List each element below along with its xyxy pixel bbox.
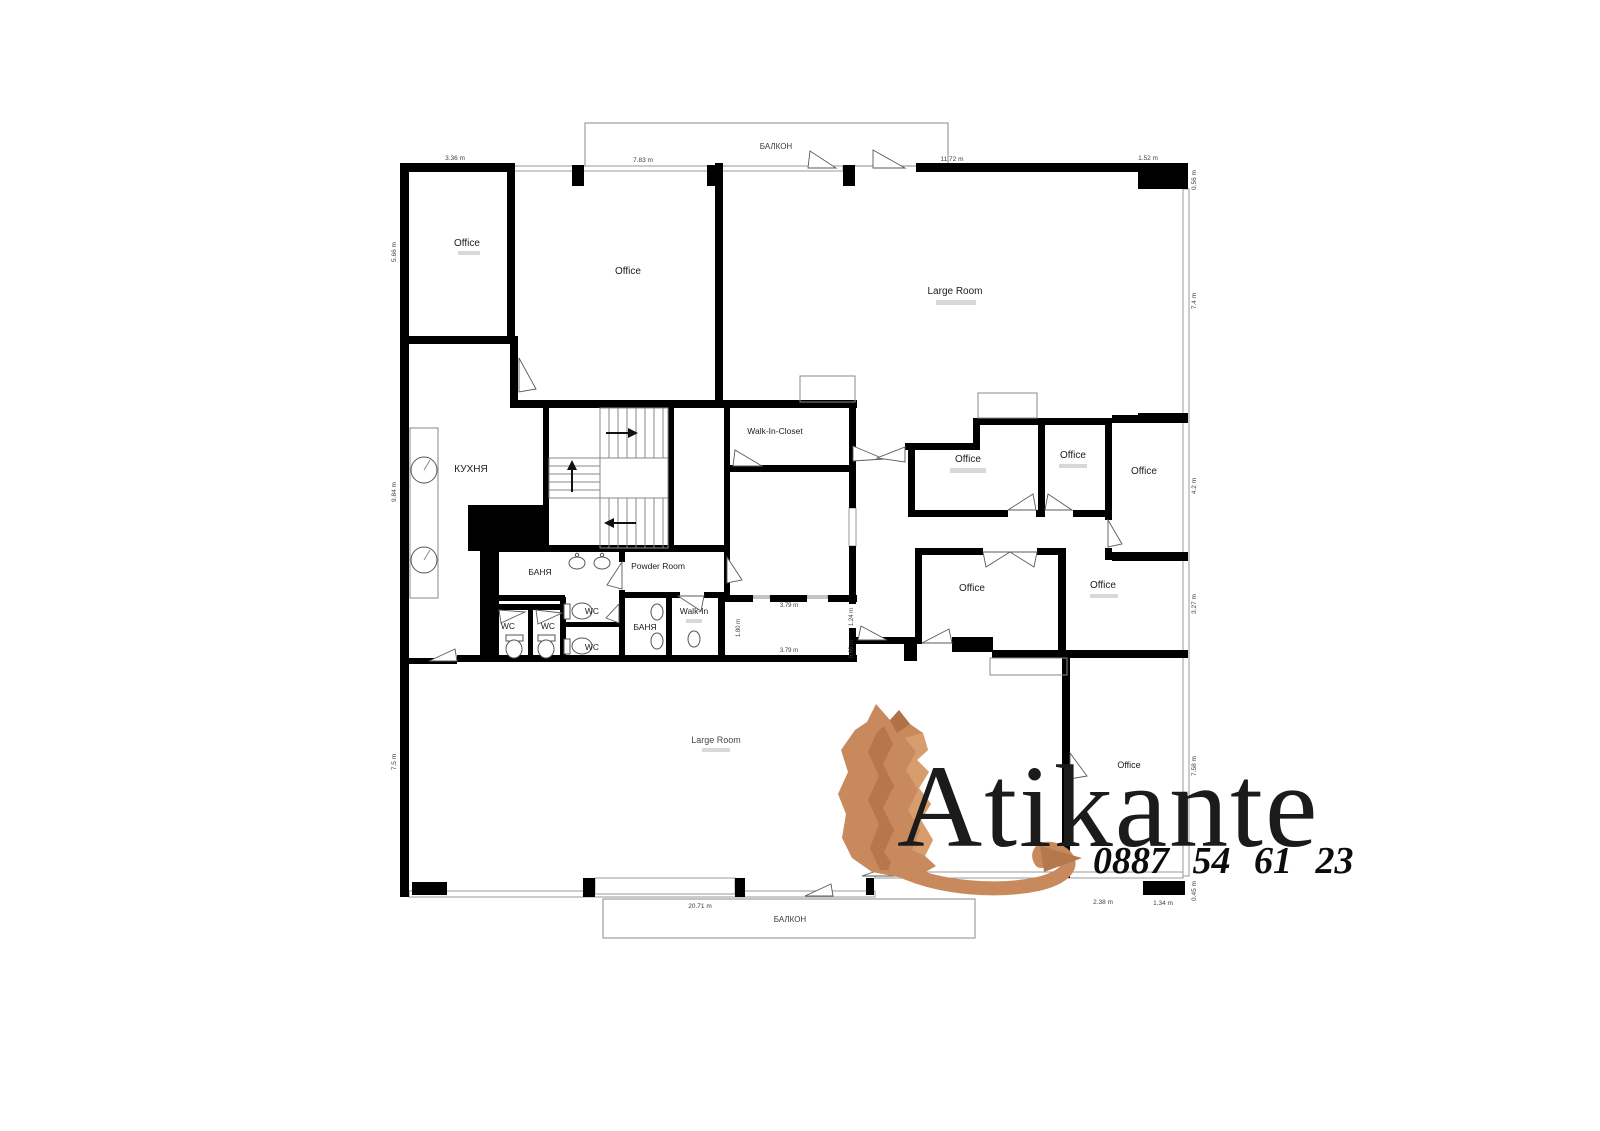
dim-left-2: 9.84 m	[391, 482, 398, 502]
dim-top-1: 3.36 m	[445, 155, 465, 162]
sink-icon	[651, 604, 663, 620]
room-label-office-top-middle: Office	[615, 266, 641, 277]
dim-int-width-top: 3.79 m	[780, 603, 798, 609]
dim-bottom-1: 20.71 m	[688, 903, 712, 910]
area-smudge	[702, 748, 730, 752]
sink-icon	[651, 633, 663, 649]
room-label-kitchen: КУХНЯ	[454, 464, 487, 475]
brand-phone: 0887 54 61 23	[1093, 840, 1354, 882]
dim-right-2: 7.4 m	[1191, 293, 1198, 309]
dim-right-3: 4.2 m	[1191, 478, 1198, 494]
toilet-icon	[506, 635, 523, 658]
area-smudge	[686, 619, 702, 623]
dim-int-height: 1.80 m	[736, 619, 742, 637]
room-label-walk-in-closet: Walk-In-Closet	[747, 426, 803, 436]
room-label-large-room: Large Room	[927, 286, 982, 297]
kitchen-counter-icon	[410, 428, 438, 598]
dim-top-2: 7.83 m	[633, 157, 653, 164]
dim-right-4: 3.27 m	[1191, 594, 1198, 614]
balcony-bottom-label: БАЛКОН	[774, 915, 807, 924]
floor-plan-page: БАЛКОН БАЛКОН	[0, 0, 1600, 1131]
dim-top-4: 1.52 m	[1138, 155, 1158, 162]
sink-icon	[569, 553, 585, 569]
room-label-office-mid-left: Office	[955, 454, 981, 465]
balcony-top-label: БАЛКОН	[760, 142, 793, 151]
area-smudge	[458, 251, 480, 255]
brand-logo: Atikante 0887 54 61 23	[838, 704, 1354, 888]
dim-int-width-bottom: 3.79 m	[780, 648, 798, 654]
room-label-large-room-bottom: Large Room	[691, 735, 741, 745]
room-label-office-lower-left: Office	[959, 583, 985, 594]
dim-bottom-2: 2.38 m	[1093, 899, 1113, 906]
room-label-office-mid-right: Office	[1131, 466, 1157, 477]
room-label-bathroom-2: БАНЯ	[633, 622, 656, 632]
dim-int-right-1: 1.24 m	[849, 608, 855, 626]
room-label-walk-in-small: Walk-In	[680, 606, 709, 616]
room-label-wc-4: WC	[541, 621, 555, 631]
room-label-wc-2: WC	[585, 642, 599, 652]
area-smudge	[950, 468, 986, 473]
dim-left-3: 7.5 m	[391, 754, 398, 770]
area-smudge	[1059, 464, 1087, 468]
bottom-balcony: БАЛКОН	[603, 899, 975, 938]
room-label-powder-room: Powder Room	[631, 561, 685, 571]
room-label-office-lower-right: Office	[1090, 580, 1116, 591]
room-label-wc-3: WC	[501, 621, 515, 631]
dim-top-3: 11.72 m	[940, 156, 963, 163]
floor-plan-drawing: БАЛКОН БАЛКОН	[0, 0, 1600, 1131]
room-label-wc-1: WC	[585, 606, 599, 616]
dim-bottom-3: 1.34 m	[1153, 900, 1173, 907]
area-smudge	[936, 300, 976, 305]
stairs-icon	[549, 408, 668, 548]
room-label-office-top-left: Office	[454, 238, 480, 249]
area-smudge	[1090, 594, 1118, 598]
room-label-office-mid-center: Office	[1060, 450, 1086, 461]
dim-right-1: 0.56 m	[1191, 170, 1198, 190]
toilet-icon	[538, 635, 555, 658]
dim-right-6: 0.45 m	[1191, 881, 1198, 901]
dim-left-1: 5.66 m	[391, 242, 398, 262]
dim-int-right-2: 0.66 m	[849, 640, 855, 658]
sink-icon	[688, 631, 700, 647]
sink-icon	[594, 553, 610, 569]
room-label-bathroom-1: БАНЯ	[528, 567, 551, 577]
